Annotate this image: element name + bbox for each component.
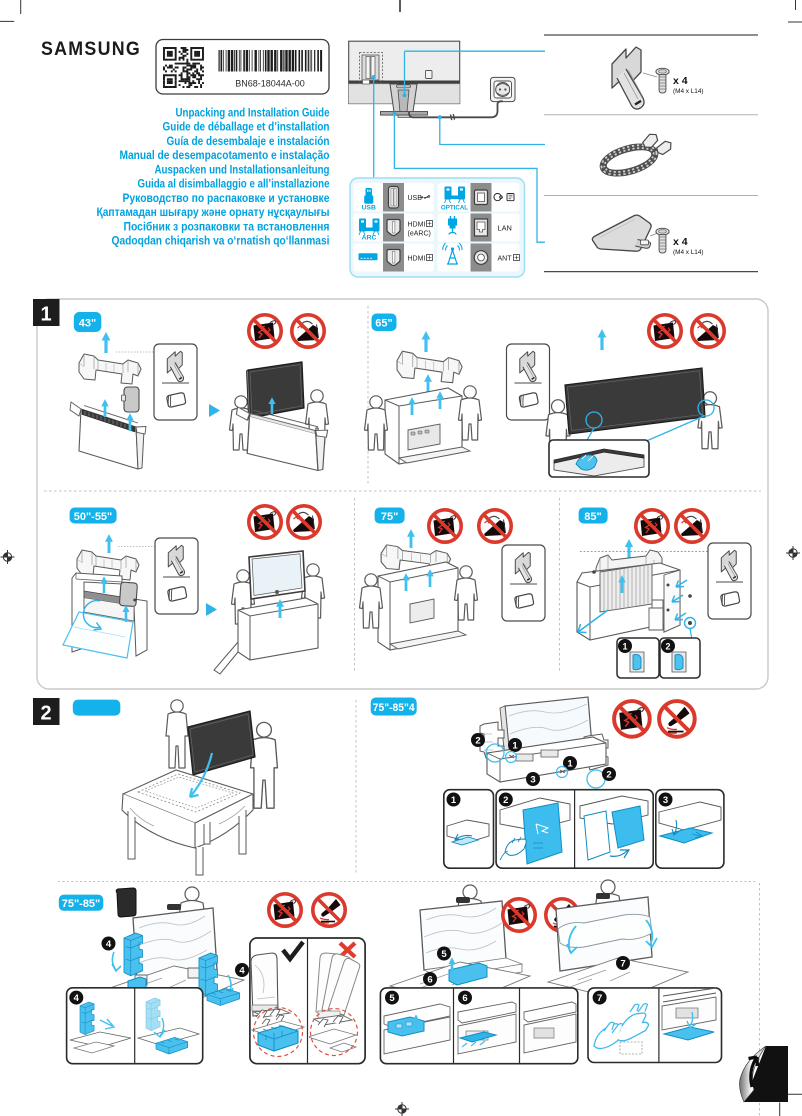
svg-text:4: 4 <box>239 966 245 977</box>
svg-text:2: 2 <box>503 795 508 806</box>
svg-text:3: 3 <box>663 795 668 806</box>
svg-text:ANT: ANT <box>498 256 513 263</box>
svg-text:(M4 x L14): (M4 x L14) <box>673 249 704 256</box>
svg-text:4: 4 <box>106 939 112 950</box>
svg-text:Посібник з розпаковки та встан: Посібник з розпаковки та встановлення <box>124 219 330 233</box>
svg-text:x 4: x 4 <box>673 236 688 248</box>
svg-text:Қаптамадан шығару және орнату: Қаптамадан шығару және орнату нұсқаулығы <box>97 205 330 219</box>
svg-text:LAN: LAN <box>498 224 512 233</box>
svg-text:Unpacking and Installation Gui: Unpacking and Installation Guide <box>176 106 330 120</box>
svg-text:2: 2 <box>40 703 51 725</box>
svg-text:50"-55": 50"-55" <box>74 511 113 523</box>
svg-text:1: 1 <box>451 795 457 806</box>
svg-text:43": 43" <box>79 318 96 330</box>
svg-text:HDMI: HDMI <box>408 256 426 263</box>
svg-text:65": 65" <box>375 318 392 330</box>
svg-text:6: 6 <box>462 993 467 1004</box>
svg-text:OPTICAL: OPTICAL <box>441 205 468 212</box>
svg-text:x 4: x 4 <box>673 75 688 87</box>
svg-text:6: 6 <box>427 975 432 986</box>
svg-text:(eARC): (eARC) <box>408 231 431 238</box>
svg-text:3: 3 <box>530 774 535 785</box>
svg-text:Guide de déballage et d’instal: Guide de déballage et d’installation <box>163 120 330 134</box>
svg-text:1: 1 <box>567 758 573 769</box>
svg-text:Руководство по распаковке и ус: Руководство по распаковке и установке <box>123 191 330 205</box>
svg-text:SAMSUNG: SAMSUNG <box>41 38 141 60</box>
svg-text:2: 2 <box>475 735 480 746</box>
svg-text:85": 85" <box>584 511 601 523</box>
svg-text:75"-85": 75"-85" <box>62 898 101 910</box>
svg-text:USB: USB <box>408 195 423 202</box>
svg-text:HDMI: HDMI <box>408 222 426 229</box>
svg-text:Auspacken und Installationsanl: Auspacken und Installationsanleitung <box>155 162 330 176</box>
svg-text:5: 5 <box>389 993 395 1004</box>
svg-text:7: 7 <box>597 993 602 1004</box>
svg-text:1: 1 <box>622 641 627 651</box>
svg-text:ARC: ARC <box>362 235 377 242</box>
svg-text:1: 1 <box>40 304 51 326</box>
svg-text:USB: USB <box>362 205 376 212</box>
svg-text:Qadoqdan chiqarish va o‘rnatis: Qadoqdan chiqarish va o‘rnatish qo‘llanm… <box>112 234 330 248</box>
svg-text:2: 2 <box>606 769 611 780</box>
svg-text:(M4 x L14): (M4 x L14) <box>673 88 704 95</box>
svg-text:4: 4 <box>74 993 80 1004</box>
svg-text:7: 7 <box>620 959 625 970</box>
svg-text:75": 75" <box>381 511 398 523</box>
svg-text:5: 5 <box>441 949 447 960</box>
svg-text:Guía de desembalaje e instalac: Guía de desembalaje e instalación <box>167 134 330 148</box>
svg-text:75"-85"4: 75"-85"4 <box>373 702 416 714</box>
svg-text:Manual de desempacotamento e i: Manual de desempacotamento e instalação <box>120 148 330 162</box>
svg-text:1: 1 <box>512 740 518 751</box>
svg-text:2: 2 <box>665 641 670 651</box>
svg-text:BN68-18044A-00: BN68-18044A-00 <box>235 79 305 89</box>
svg-text:Guida al disimballaggio e all’: Guida al disimballaggio e all’installazi… <box>138 177 330 191</box>
